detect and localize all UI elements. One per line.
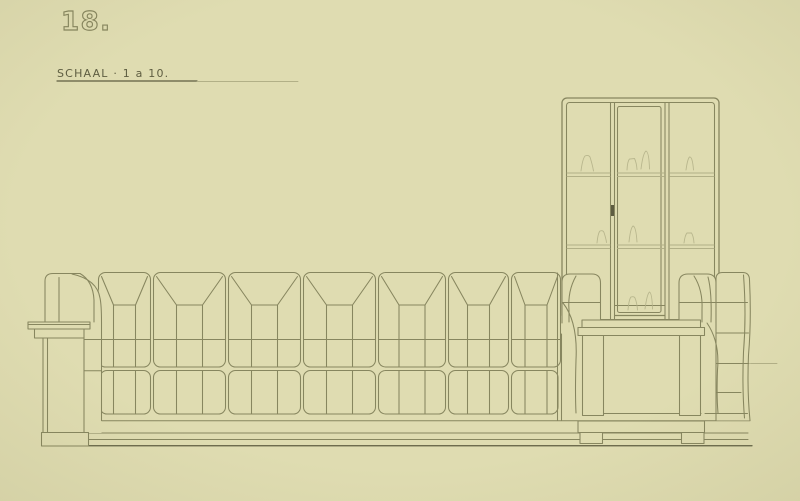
drawing-canvas: 18. SCHAAL · 1 a 10. bbox=[0, 0, 800, 501]
paper-vignette bbox=[0, 0, 800, 501]
furniture-blueprint-scan: 18. SCHAAL · 1 a 10. bbox=[0, 0, 800, 501]
